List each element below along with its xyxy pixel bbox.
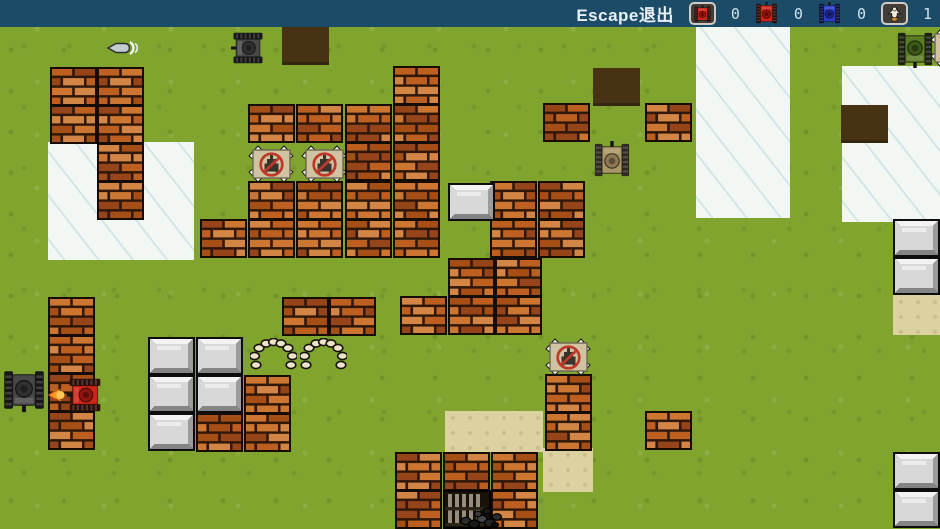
ice-tile (696, 27, 790, 218)
brick-wall-tile (395, 452, 442, 491)
sand-tile (543, 448, 593, 492)
steel-block-tile (148, 375, 195, 413)
player-tank-count: 0 (731, 5, 740, 23)
brick-wall-tile (97, 143, 144, 182)
brick-wall-tile (545, 374, 592, 413)
brick-wall-tile (543, 103, 590, 142)
steel-block-tile (448, 183, 495, 221)
brick-wall-tile (48, 411, 95, 450)
steel-block-tile (893, 490, 940, 528)
brick-wall-tile (495, 296, 542, 335)
ice-tile (842, 66, 940, 222)
brick-wall-tile (545, 412, 592, 451)
brick-wall-tile (296, 181, 343, 220)
dirt-hole-tile (593, 68, 640, 106)
brick-wall-tile (345, 142, 392, 181)
brick-wall-tile (490, 181, 537, 220)
steel-block-tile (196, 337, 243, 375)
brick-wall-tile (448, 258, 495, 297)
brick-wall-tile (395, 490, 442, 529)
brick-wall-tile (393, 104, 440, 143)
brick-wall-tile (296, 104, 343, 143)
player-red-tank-tank (62, 377, 108, 413)
stone-arc (300, 338, 347, 371)
brick-wall-tile (538, 219, 585, 258)
base-count: 1 (923, 5, 932, 23)
hud-right-group: Escape退出 0 0 0 1 (576, 0, 932, 27)
enemy-dark-tank-left-tank (0, 368, 50, 412)
bullet-shell (105, 40, 139, 56)
enemy-green-tank-tank (896, 30, 934, 68)
red-tank-icon (755, 2, 779, 26)
escape-button[interactable]: Escape退出 (576, 1, 674, 26)
game-screen: Escape退出 0 0 0 1 (0, 0, 940, 529)
hud-bar: Escape退出 0 0 0 1 (0, 0, 940, 27)
dirt-hole-tile (841, 105, 888, 143)
brick-wall-tile (495, 258, 542, 297)
brick-wall-tile (97, 105, 144, 144)
blue-tank-icon (818, 2, 842, 26)
brick-wall-tile (50, 105, 97, 144)
brick-wall-tile (645, 103, 692, 142)
player-tank-button[interactable] (689, 2, 716, 25)
stone-arc (250, 338, 297, 371)
brick-wall-tile (393, 181, 440, 220)
red-tank-count: 0 (794, 5, 803, 23)
brick-wall-tile (282, 297, 329, 336)
brick-wall-tile (244, 375, 291, 414)
brick-wall-tile (400, 296, 447, 335)
no-tank-sign-tile (545, 337, 592, 377)
battlefield[interactable] (0, 0, 940, 529)
rubble-rocks (459, 502, 505, 529)
blue-tank-count: 0 (857, 5, 866, 23)
muzzle-flash (48, 387, 66, 403)
brick-wall-tile (490, 219, 537, 258)
steel-block-tile (893, 452, 940, 490)
brick-wall-tile (448, 296, 495, 335)
brick-wall-tile (48, 335, 95, 374)
brick-wall-tile (248, 104, 295, 143)
brick-wall-tile (443, 452, 490, 491)
brick-wall-tile (345, 219, 392, 258)
base-eagle-icon (883, 2, 906, 26)
brick-wall-tile (50, 67, 97, 106)
brick-wall-tile (491, 452, 538, 491)
brick-wall-tile (393, 142, 440, 181)
player-red-tank-icon (691, 2, 714, 26)
brick-wall-tile (196, 413, 243, 452)
brick-wall-tile (538, 181, 585, 220)
enemy-tan-tank-tank (592, 141, 632, 179)
enemy-dark-tank-top-tank (226, 31, 270, 65)
steel-block-tile (148, 413, 195, 451)
steel-block-tile (893, 257, 940, 295)
brick-wall-tile (244, 413, 291, 452)
no-tank-sign-tile (301, 144, 348, 184)
base-eagle-button[interactable] (881, 2, 908, 25)
brick-wall-tile (645, 411, 692, 450)
brick-wall-tile (329, 297, 376, 336)
brick-wall-tile (97, 181, 144, 220)
brick-wall-tile (393, 219, 440, 258)
sand-tile (893, 295, 940, 335)
no-tank-sign-tile (248, 144, 295, 184)
brick-wall-tile (97, 67, 144, 106)
steel-block-tile (196, 375, 243, 413)
dirt-hole-tile (282, 27, 329, 65)
brick-wall-tile (248, 181, 295, 220)
brick-wall-tile (345, 104, 392, 143)
steel-block-tile (893, 219, 940, 257)
steel-block-tile (148, 337, 195, 375)
brick-wall-tile (200, 219, 247, 258)
sand-tile (445, 411, 543, 452)
brick-wall-tile (345, 181, 392, 220)
brick-wall-tile (296, 219, 343, 258)
brick-wall-tile (248, 219, 295, 258)
brick-wall-tile (393, 66, 440, 105)
brick-wall-tile (48, 297, 95, 336)
